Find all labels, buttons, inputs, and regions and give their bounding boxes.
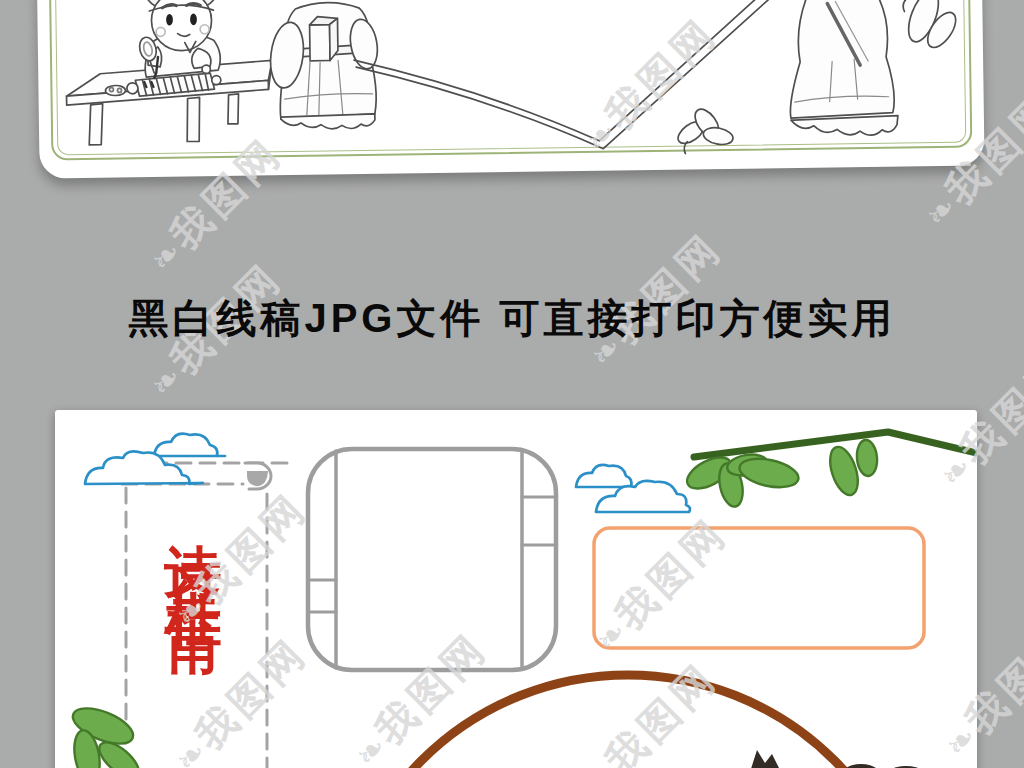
- page-background: 黑白线稿JPG文件 可直接打印方便实用: [0, 0, 1024, 768]
- cloud-icon: [576, 465, 631, 487]
- bamboo-leaf-sketch-middle: [674, 105, 735, 154]
- gray-photo-frame: [308, 449, 556, 670]
- color-template-preview-card: 诗圣杜甫: [55, 410, 977, 768]
- watermark-logo-icon: ❧: [917, 188, 964, 235]
- scroll-curl-icon: [245, 463, 271, 489]
- orange-text-frame: [594, 528, 924, 648]
- scholar-robe-line-art: [789, 0, 899, 136]
- leaf-icon: [855, 439, 878, 477]
- line-art-group: [65, 0, 963, 162]
- cloud-icon: [154, 434, 225, 456]
- template-title: 诗圣杜甫: [163, 498, 225, 768]
- leaf-icon: [737, 454, 801, 492]
- boy-writing-line-art: [136, 0, 220, 78]
- watermark-logo-icon: ❧: [142, 358, 189, 405]
- caption-text: 黑白线稿JPG文件 可直接打印方便实用: [0, 295, 1024, 341]
- line-art-preview-card: [36, 0, 984, 179]
- bamboo-leaf-sketch-right: [902, 0, 962, 53]
- scholar-holding-tablet-line-art: [266, 2, 382, 130]
- line-art-drawing: [36, 0, 984, 179]
- brown-circle-frame: [336, 675, 920, 768]
- inkstone: [105, 85, 125, 95]
- watermark-logo-icon: ❧: [142, 233, 189, 280]
